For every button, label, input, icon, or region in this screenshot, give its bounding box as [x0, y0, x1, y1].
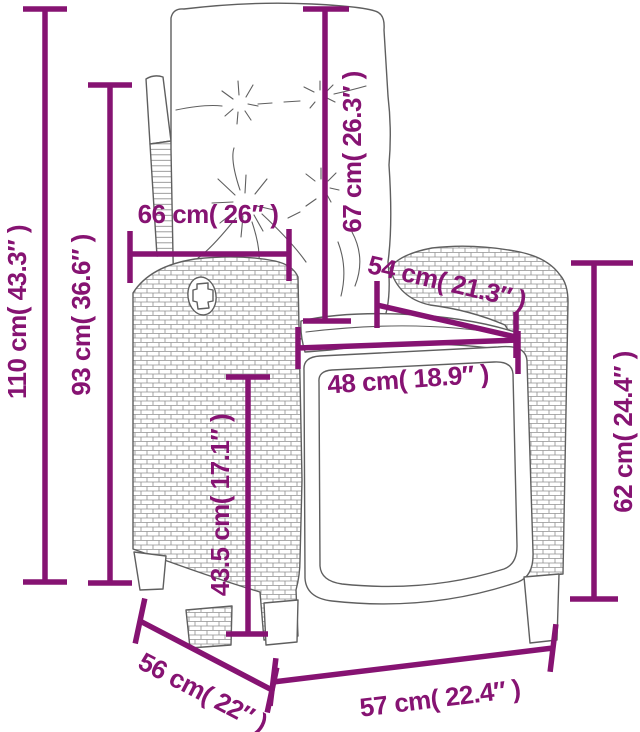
dim-back-height-label: 93 cm( 36.6″ ) — [66, 234, 96, 396]
dim-back-length-label: 67 cm( 26.3″ ) — [337, 71, 367, 233]
dim-back-width-label: 66 cm( 26″ ) — [138, 199, 279, 229]
dim-back-height: 93 cm( 36.6″ ) — [66, 85, 132, 583]
dimension-diagram: 110 cm( 43.3″ ) 93 cm( 36.6″ ) 66 cm( 26… — [0, 0, 640, 732]
dim-seat-height-label: 43.5 cm( 17.1″ ) — [205, 414, 235, 596]
back-post-upper — [146, 76, 171, 144]
dim-overall-height-label: 110 cm( 43.3″ ) — [2, 225, 32, 399]
back-left-leg — [134, 552, 166, 590]
dim-armrest-height-label: 62 cm( 24.4″ ) — [608, 351, 638, 513]
dim-front-width: 57 cm( 22.4″ ) — [270, 624, 556, 723]
dim-front-width-label: 57 cm( 22.4″ ) — [358, 673, 522, 722]
strut-foot — [186, 606, 232, 648]
chair-diagram-svg: 110 cm( 43.3″ ) 93 cm( 36.6″ ) 66 cm( 26… — [0, 0, 640, 732]
dim-side-depth-label: 56 cm( 22″ ) — [134, 646, 273, 732]
front-left-foot — [264, 600, 298, 645]
dim-overall-height: 110 cm( 43.3″ ) — [2, 9, 67, 582]
dim-armrest-height: 62 cm( 24.4″ ) — [570, 263, 638, 599]
